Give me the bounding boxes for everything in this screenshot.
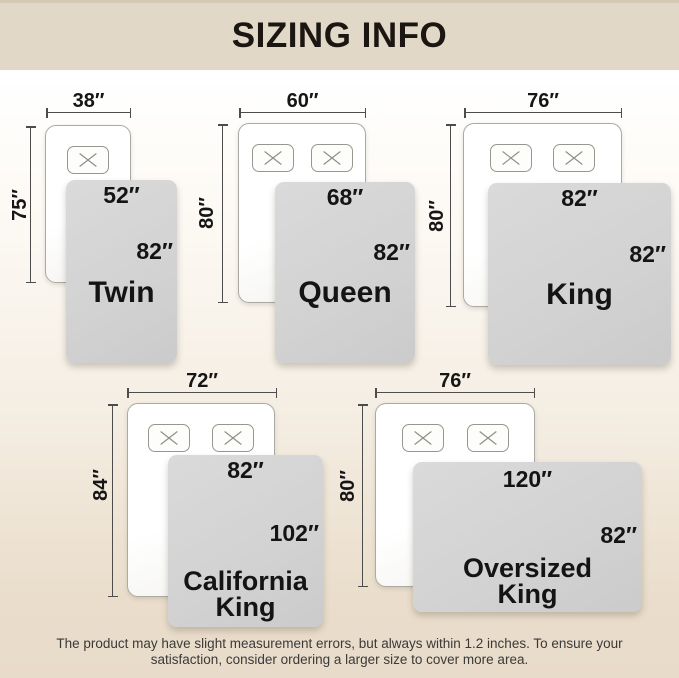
mattress-length-label: 75″ <box>8 185 32 225</box>
size-name-line2: King <box>498 579 558 609</box>
page-title: SIZING INFO <box>232 14 448 56</box>
blanket-length-label: 82″ <box>373 239 410 266</box>
blanket: 120″ 82″ Oversized King <box>413 462 642 612</box>
blanket-width-label: 52″ <box>66 182 177 209</box>
size-name-label: Oversized King <box>413 555 642 607</box>
width-dimension-line <box>375 392 535 393</box>
mattress-width-label: 72″ <box>127 370 277 393</box>
blanket-length-label: 102″ <box>270 520 319 547</box>
width-dimension-line <box>127 392 277 393</box>
mattress-width-label: 76″ <box>375 370 535 393</box>
length-dimension-line <box>112 404 113 597</box>
blanket: 82″ 102″ California King <box>168 455 323 627</box>
disclaimer-line1: The product may have slight measurement … <box>0 636 679 652</box>
disclaimer-note: The product may have slight measurement … <box>0 636 679 668</box>
mattress-length-label: 80″ <box>336 466 360 506</box>
pillow-row <box>376 424 534 452</box>
size-name-label: California King <box>168 568 323 620</box>
mattress-width-label: 38″ <box>46 90 131 113</box>
disclaimer-line2: satisfaction, consider ordering a larger… <box>0 652 679 668</box>
mattress-width-label: 60″ <box>239 90 366 113</box>
pillow-row <box>128 424 274 452</box>
title-banner: SIZING INFO <box>0 0 679 70</box>
blanket-length-label: 82″ <box>629 241 666 268</box>
pillow-icon <box>490 144 532 172</box>
blanket-width-label: 82″ <box>488 185 671 212</box>
pillow-icon <box>212 424 254 452</box>
length-dimension-line <box>450 124 451 307</box>
length-dimension-line <box>362 404 363 587</box>
blanket-width-label: 68″ <box>275 184 415 211</box>
width-dimension-line <box>46 112 131 113</box>
blanket: 82″ 82″ King <box>488 183 671 365</box>
width-dimension-line <box>239 112 366 113</box>
sizing-info-graphic: SIZING INFO 38″ 75″ 52″ 82″ Twin 60″ 80″ <box>0 0 679 678</box>
pillow-row <box>46 146 130 174</box>
size-name-label: King <box>488 280 671 310</box>
banner-top-strip <box>0 0 679 3</box>
mattress-length-label: 80″ <box>195 193 219 233</box>
pillow-icon <box>148 424 190 452</box>
pillow-row <box>239 144 365 172</box>
mattress-length-label: 84″ <box>89 465 113 505</box>
size-name-label: Twin <box>66 278 177 308</box>
blanket-width-label: 120″ <box>413 466 642 493</box>
pillow-row <box>464 144 621 172</box>
width-dimension-line <box>464 112 622 113</box>
length-dimension-line <box>30 126 31 283</box>
pillow-icon <box>467 424 509 452</box>
size-name-line2: King <box>216 592 276 622</box>
pillow-icon <box>67 146 109 174</box>
pillow-icon <box>553 144 595 172</box>
length-dimension-line <box>222 124 223 303</box>
blanket: 68″ 82″ Queen <box>275 182 415 363</box>
blanket: 52″ 82″ Twin <box>66 180 177 363</box>
mattress-width-label: 76″ <box>464 90 622 113</box>
mattress-length-label: 80″ <box>425 196 449 236</box>
pillow-icon <box>402 424 444 452</box>
blanket-length-label: 82″ <box>600 522 637 549</box>
blanket-length-label: 82″ <box>136 238 173 265</box>
blanket-width-label: 82″ <box>168 457 323 484</box>
size-name-label: Queen <box>275 278 415 308</box>
pillow-icon <box>311 144 353 172</box>
pillow-icon <box>252 144 294 172</box>
